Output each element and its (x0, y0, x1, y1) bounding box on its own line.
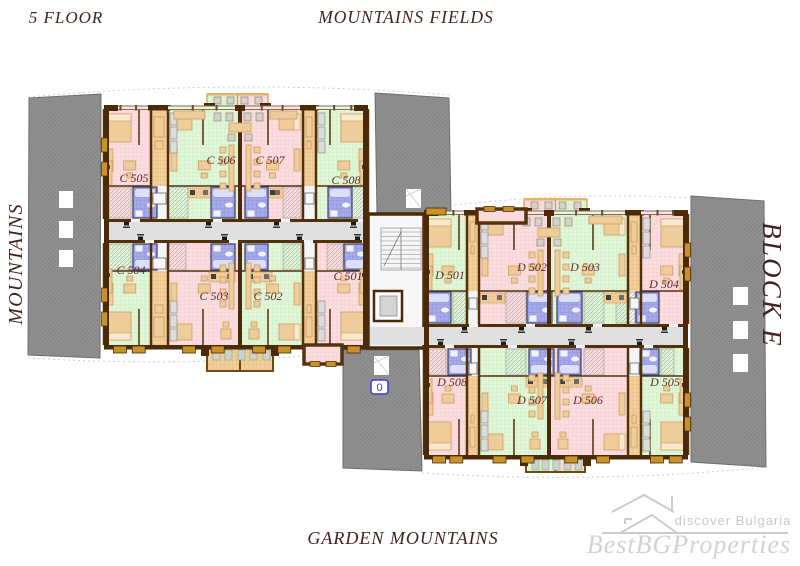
svg-text:BLOCK E: BLOCK E (757, 222, 787, 348)
svg-text:discover Bulgaria: discover Bulgaria (675, 513, 792, 528)
svg-text:BestBGProperties: BestBGProperties (587, 530, 791, 559)
svg-text:C 508: C 508 (331, 173, 360, 187)
svg-text:D 506: D 506 (572, 393, 603, 407)
svg-text:MOUNTAINS FIELDS: MOUNTAINS FIELDS (317, 7, 494, 27)
svg-text:C 505: C 505 (119, 171, 148, 185)
svg-text:MOUNTAINS: MOUNTAINS (5, 203, 27, 326)
svg-text:GARDEN MOUNTAINS: GARDEN MOUNTAINS (307, 528, 498, 548)
svg-text:C 503: C 503 (199, 289, 228, 303)
svg-text:0: 0 (376, 382, 382, 394)
svg-text:D 501: D 501 (434, 268, 465, 282)
svg-text:5 FLOOR: 5 FLOOR (29, 8, 104, 27)
svg-text:D 508: D 508 (436, 375, 467, 389)
svg-text:C 506: C 506 (206, 153, 235, 167)
svg-text:D 507: D 507 (516, 393, 548, 407)
svg-text:D 504: D 504 (648, 277, 679, 291)
svg-text:C 502: C 502 (253, 289, 282, 303)
svg-text:C 501: C 501 (333, 269, 362, 283)
svg-text:D 502: D 502 (516, 260, 547, 274)
svg-text:D 503: D 503 (569, 260, 600, 274)
svg-text:C 507: C 507 (255, 153, 285, 167)
svg-text:C 504: C 504 (116, 263, 145, 277)
svg-text:D 505: D 505 (649, 375, 680, 389)
